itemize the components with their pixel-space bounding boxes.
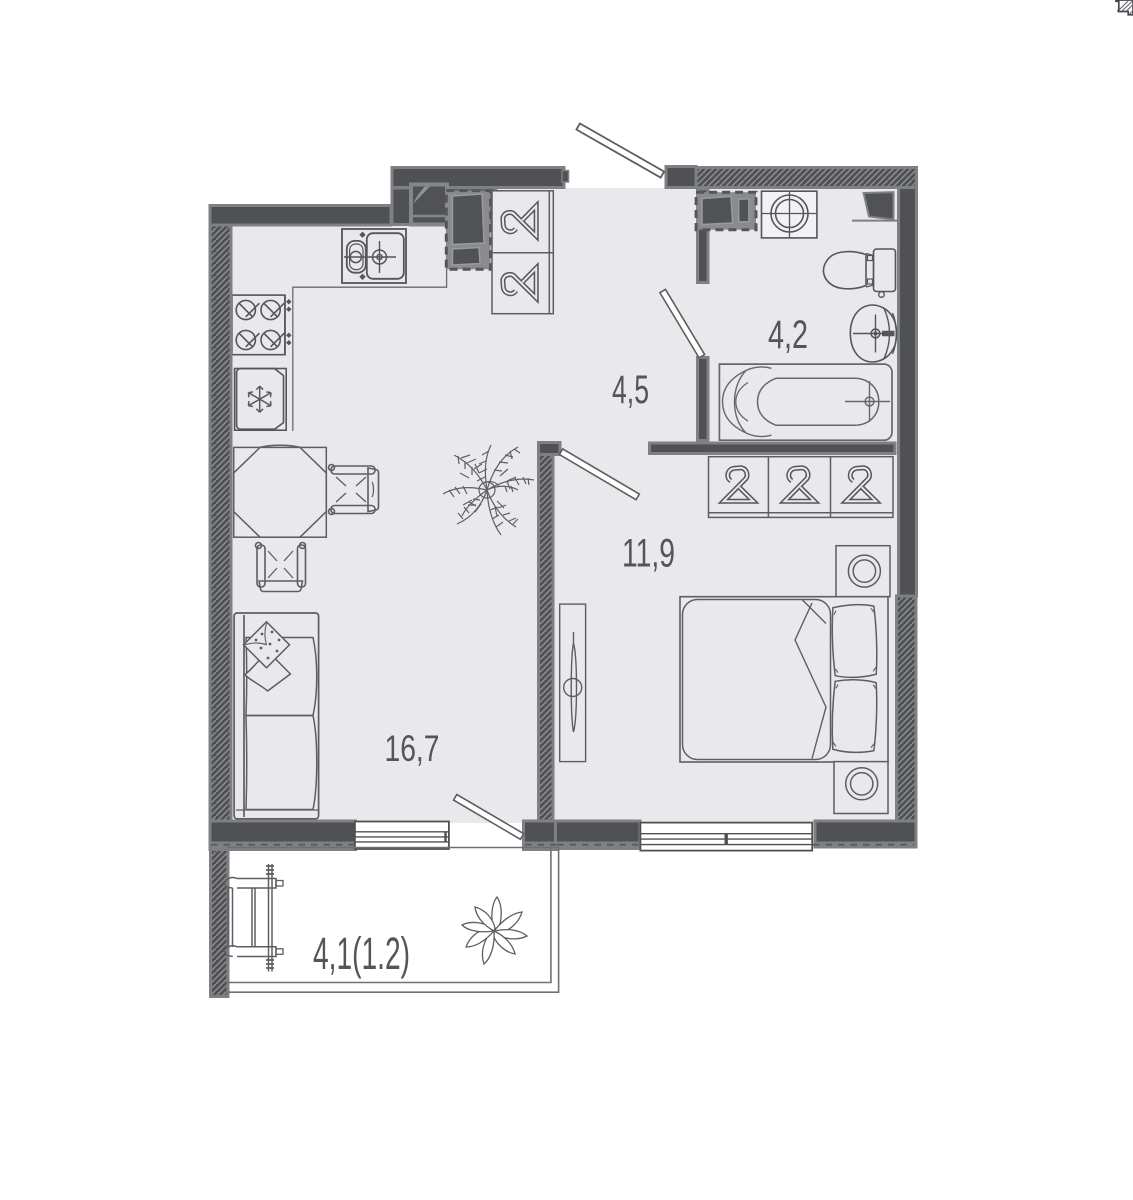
svg-text:4,2: 4,2 xyxy=(768,313,808,357)
svg-text:4,5: 4,5 xyxy=(612,368,649,412)
svg-text:11,9: 11,9 xyxy=(622,532,675,576)
svg-text:4,1(1.2): 4,1(1.2) xyxy=(313,928,410,979)
svg-text:16,7: 16,7 xyxy=(385,728,440,769)
